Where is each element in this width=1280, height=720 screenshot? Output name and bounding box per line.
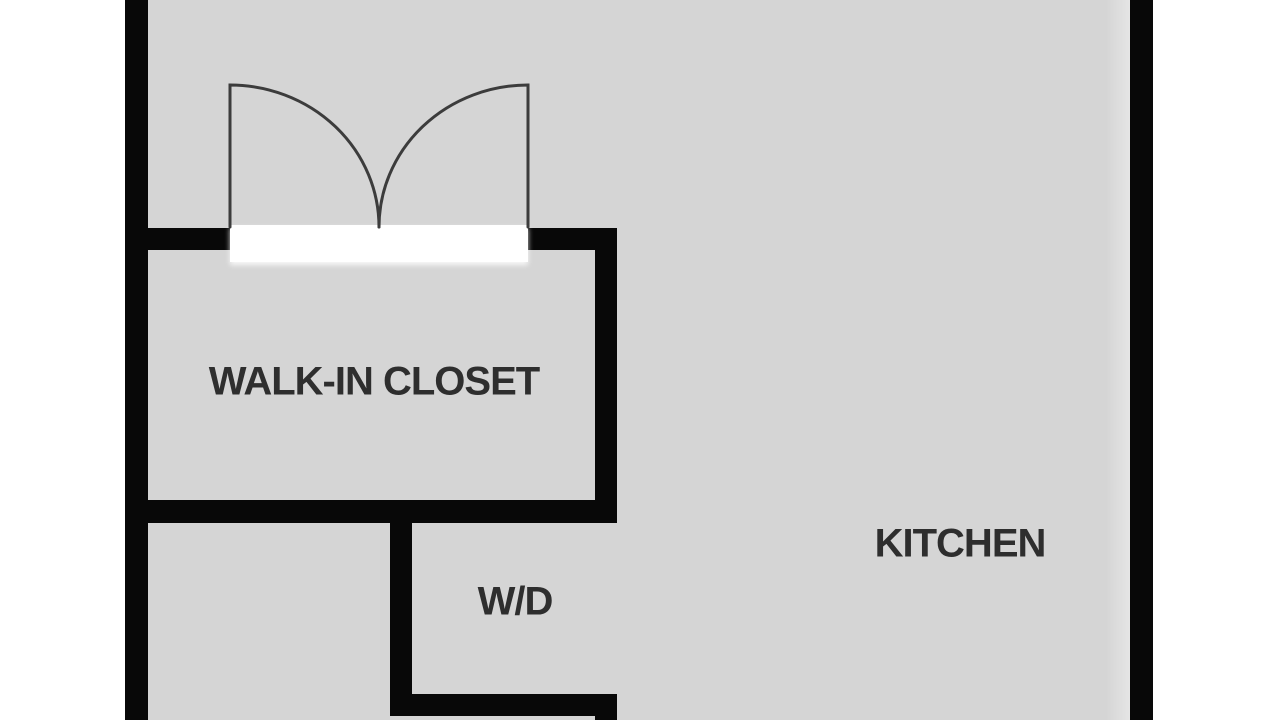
wall-right-exterior: [1130, 0, 1153, 720]
floor-plan: WALK-IN CLOSET W/D KITCHEN: [0, 0, 1280, 720]
double-door-opening: [230, 225, 528, 262]
right-wall-shade: [1106, 0, 1130, 720]
wall-closet-bottom: [148, 500, 617, 523]
wall-closet-top-left: [148, 228, 230, 250]
wall-closet-right: [595, 228, 617, 523]
wall-wd-left: [390, 523, 412, 716]
room-label-walk-in-closet: WALK-IN CLOSET: [209, 360, 539, 405]
room-label-kitchen: KITCHEN: [875, 522, 1046, 567]
wall-bottom-right-stub: [595, 694, 617, 720]
wall-left-exterior: [125, 0, 148, 720]
room-label-wd: W/D: [478, 580, 553, 625]
wall-wd-bottom: [390, 694, 617, 716]
